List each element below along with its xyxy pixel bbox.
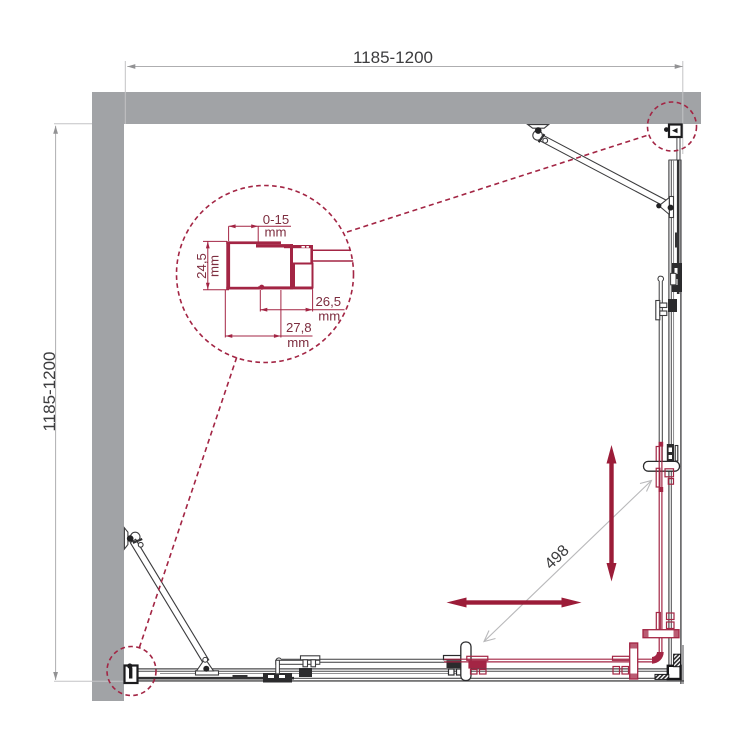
svg-text:27,8: 27,8 bbox=[286, 320, 312, 335]
svg-text:1185-1200: 1185-1200 bbox=[353, 48, 433, 67]
svg-text:mm: mm bbox=[318, 309, 340, 324]
svg-text:26,5: 26,5 bbox=[315, 294, 341, 309]
svg-text:mm: mm bbox=[265, 225, 287, 240]
svg-text:mm: mm bbox=[287, 335, 309, 350]
svg-text:mm: mm bbox=[207, 255, 222, 277]
svg-text:1185-1200: 1185-1200 bbox=[40, 351, 59, 431]
